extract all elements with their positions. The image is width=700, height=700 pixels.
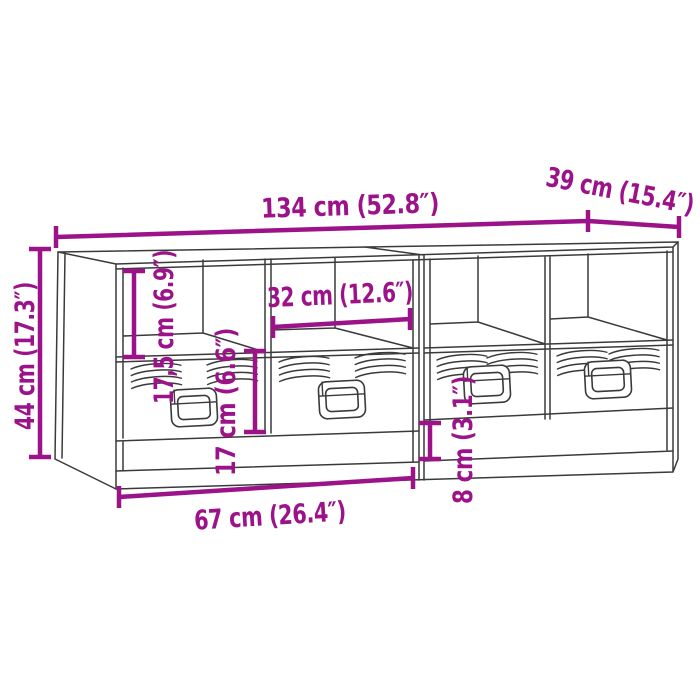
dim-drawer-height-label: 17 cm (6.6″): [211, 328, 242, 476]
dim-compartment-height: 17,5 cm (6.9″): [123, 250, 180, 404]
vent-slats-group: [279, 356, 330, 382]
left-unit-drawer-lines: [116, 431, 419, 471]
dim-overall-height-label: 44 cm (17.3″): [10, 282, 41, 430]
dim-drawer-height: 17 cm (6.6″): [211, 328, 266, 476]
dim-depth: 39 cm (15.4″): [543, 162, 696, 238]
dimension-diagram: 134 cm (52.8″) 39 cm (15.4″) 44 cm (17.3…: [0, 0, 700, 700]
unit-gap-seam: [419, 255, 424, 480]
drawer-handle: [318, 380, 366, 419]
dim-overall-width: 134 cm (52.8″): [56, 188, 588, 248]
dim-compartment-height-label: 17,5 cm (6.9″): [149, 250, 180, 404]
drawer-handle: [584, 360, 632, 399]
vent-slats-group: [355, 352, 406, 378]
dim-compartment-width-label: 32 cm (12.6″): [266, 277, 413, 314]
dim-unit-width-label: 67 cm (26.4″): [193, 496, 347, 536]
cabinet-dimension-drawing: 134 cm (52.8″) 39 cm (15.4″) 44 cm (17.3…: [0, 0, 700, 700]
dim-bottom-drawer-height-label: 8 cm (3.1″): [448, 376, 479, 504]
dim-depth-label: 39 cm (15.4″): [543, 162, 696, 221]
dim-overall-width-label: 134 cm (52.8″): [261, 188, 440, 225]
dim-overall-height: 44 cm (17.3″): [10, 249, 51, 457]
dim-unit-width: 67 cm (26.4″): [119, 467, 413, 537]
dim-bottom-drawer-height: 8 cm (3.1″): [419, 376, 479, 504]
